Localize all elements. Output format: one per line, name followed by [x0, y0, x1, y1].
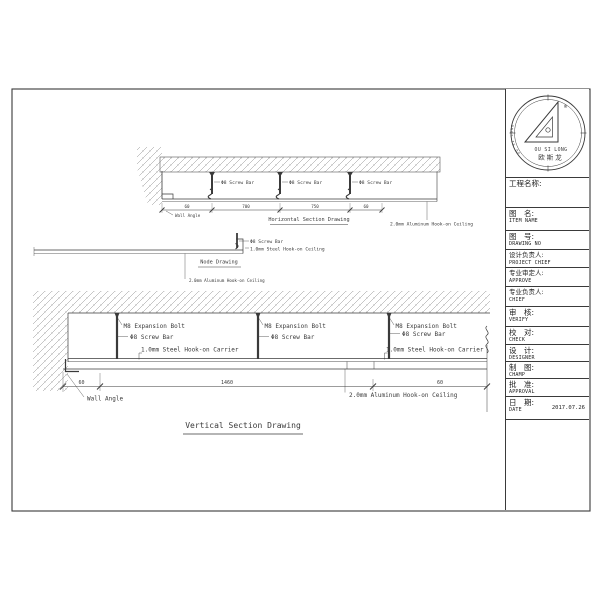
- dim-label: 60: [78, 380, 84, 386]
- steel-ceiling-label: 1.0mm Steel Hook-on Ceiling: [250, 247, 325, 253]
- approval-cell: 批 准: APPROVAL: [506, 379, 589, 397]
- approve-cell: 专业审定人: APPROVE: [506, 268, 589, 287]
- expansion-bolt-label: M8 Expansion Bolt: [396, 323, 458, 330]
- screw-bar-label: Φ8 Screw Bar: [130, 334, 174, 341]
- row-label-cn: 专业审定人:: [509, 269, 586, 278]
- row-label-cn: 设计负责人:: [509, 251, 586, 260]
- expansion-bolt-label: M8 Expansion Bolt: [265, 323, 327, 330]
- draftsman-cell: 制 图: CHAMP: [506, 362, 589, 379]
- row-label-en: CHIEF: [509, 297, 586, 303]
- aluminum-ceiling-label: 2.0mm Aluminum Hook-on Ceiling: [189, 278, 265, 283]
- dimension-line: 60 700 750 60: [160, 203, 385, 213]
- row-label-en: CHAMP: [509, 372, 586, 378]
- dim-label: 750: [311, 204, 319, 209]
- steel-carrier-label: 1.0mm Steel Hook-on Carrier: [141, 347, 239, 354]
- date-cell: 日 期: DATE 2017.07.26: [506, 397, 589, 420]
- dim-label: 1460: [221, 380, 233, 386]
- slab-and-wall-hatch: [33, 291, 490, 391]
- wall-angle-profile: [162, 194, 173, 199]
- row-label-en: PROJECT CHIEF: [509, 260, 586, 266]
- vertical-section-drawing: M8 Expansion Bolt Φ8 Screw Bar 1.0mm Ste…: [33, 291, 490, 434]
- screw-bar-label: Φ8 Screw Bar: [221, 180, 254, 186]
- row-label-en: DESIGNER: [509, 355, 586, 361]
- row-label-cn: 图 名:: [509, 209, 586, 218]
- row-label-cn: 设 计:: [509, 346, 586, 355]
- screw-bar-label: Φ8 Screw Bar: [359, 180, 392, 186]
- set-square-icon: [525, 102, 558, 142]
- row-label-cn: 批 准:: [509, 380, 586, 389]
- row-label-en: CHECK: [509, 337, 586, 343]
- drawing-no-cell: 图 号: DRAWING NO: [506, 231, 589, 250]
- dim-label: 60: [184, 204, 190, 209]
- dimension-line: 60 1460 60: [60, 345, 490, 412]
- title-block: ® OU SI LONG OU SI LONG 欧斯龙 工程名称: 图 名: I…: [505, 89, 589, 510]
- aluminum-ceiling-label: 2.0mm Aluminum Hook-on Ceiling: [390, 222, 473, 228]
- screw-bar-label: Φ8 Screw Bar: [402, 331, 446, 338]
- row-label-cn: 审 核:: [509, 308, 586, 317]
- dim-label: 60: [437, 380, 443, 386]
- wall-hatch: [137, 147, 162, 205]
- wall-angle-label: Wall Angle: [175, 213, 201, 218]
- horizontal-section-title: Horizontal Section Drawing: [268, 217, 349, 223]
- node-drawing-title: Node Drawing: [200, 260, 237, 266]
- row-label-en: DRAWING NO: [509, 241, 586, 247]
- registered-mark: ®: [564, 104, 568, 110]
- project-chief-cell: 设计负责人: PROJECT CHIEF: [506, 250, 589, 268]
- check-cell: 校 对: CHECK: [506, 327, 589, 345]
- designer-cell: 设 计: DESIGNER: [506, 345, 589, 362]
- stamp-name-cn: 欧斯龙: [538, 153, 564, 162]
- vertical-section-title: Vertical Section Drawing: [185, 421, 301, 430]
- screw-bar-label: Φ8 Screw Bar: [289, 180, 322, 186]
- title-block-empty-cell: [506, 420, 589, 510]
- verify-cell: 审 核: VERIFY: [506, 307, 589, 327]
- slab-hatch: [160, 157, 440, 172]
- row-label-en: VERIFY: [509, 317, 586, 323]
- project-name-label: 工程名称:: [509, 179, 586, 188]
- date-value: 2017.07.26: [552, 405, 585, 411]
- dim-label: 60: [363, 204, 369, 209]
- dim-label: 700: [242, 204, 250, 209]
- row-label-en: APPROVE: [509, 278, 586, 284]
- row-label-cn: 制 图:: [509, 363, 586, 372]
- aluminum-ceiling-label: 2.0mm Aluminum Hook-on Ceiling: [349, 392, 458, 399]
- expansion-bolt-label: M8 Expansion Bolt: [124, 323, 186, 330]
- screw-bar-label: Φ8 Screw Bar: [271, 334, 315, 341]
- drawing-sheet: Φ8 Screw Bar Φ8 Screw Bar Φ8 Screw Bar 6…: [0, 0, 600, 600]
- steel-carrier-label: 1.0mm Steel Hook-on Carrier: [386, 347, 484, 354]
- row-label-cn: 图 号:: [509, 232, 586, 241]
- row-label-en: APPROVAL: [509, 389, 586, 395]
- row-label-cn: 专业负责人:: [509, 288, 586, 297]
- wall-angle-label: Wall Angle: [87, 396, 124, 403]
- row-label-en: ITEM NAME: [509, 218, 586, 224]
- node-drawing: Φ8 Screw Bar 1.0mm Steel Hook-on Ceiling…: [34, 233, 325, 283]
- project-name-cell: 工程名称:: [506, 178, 589, 208]
- chief-cell: 专业负责人: CHIEF: [506, 287, 589, 307]
- stamp-name-en: OU SI LONG: [535, 147, 568, 153]
- horizontal-section-drawing: Φ8 Screw Bar Φ8 Screw Bar Φ8 Screw Bar 6…: [137, 147, 473, 228]
- company-stamp: ® OU SI LONG OU SI LONG 欧斯龙: [506, 89, 589, 178]
- item-name-cell: 图 名: ITEM NAME: [506, 208, 589, 231]
- screw-bar-label: Φ8 Screw Bar: [250, 239, 283, 245]
- row-label-cn: 校 对:: [509, 328, 586, 337]
